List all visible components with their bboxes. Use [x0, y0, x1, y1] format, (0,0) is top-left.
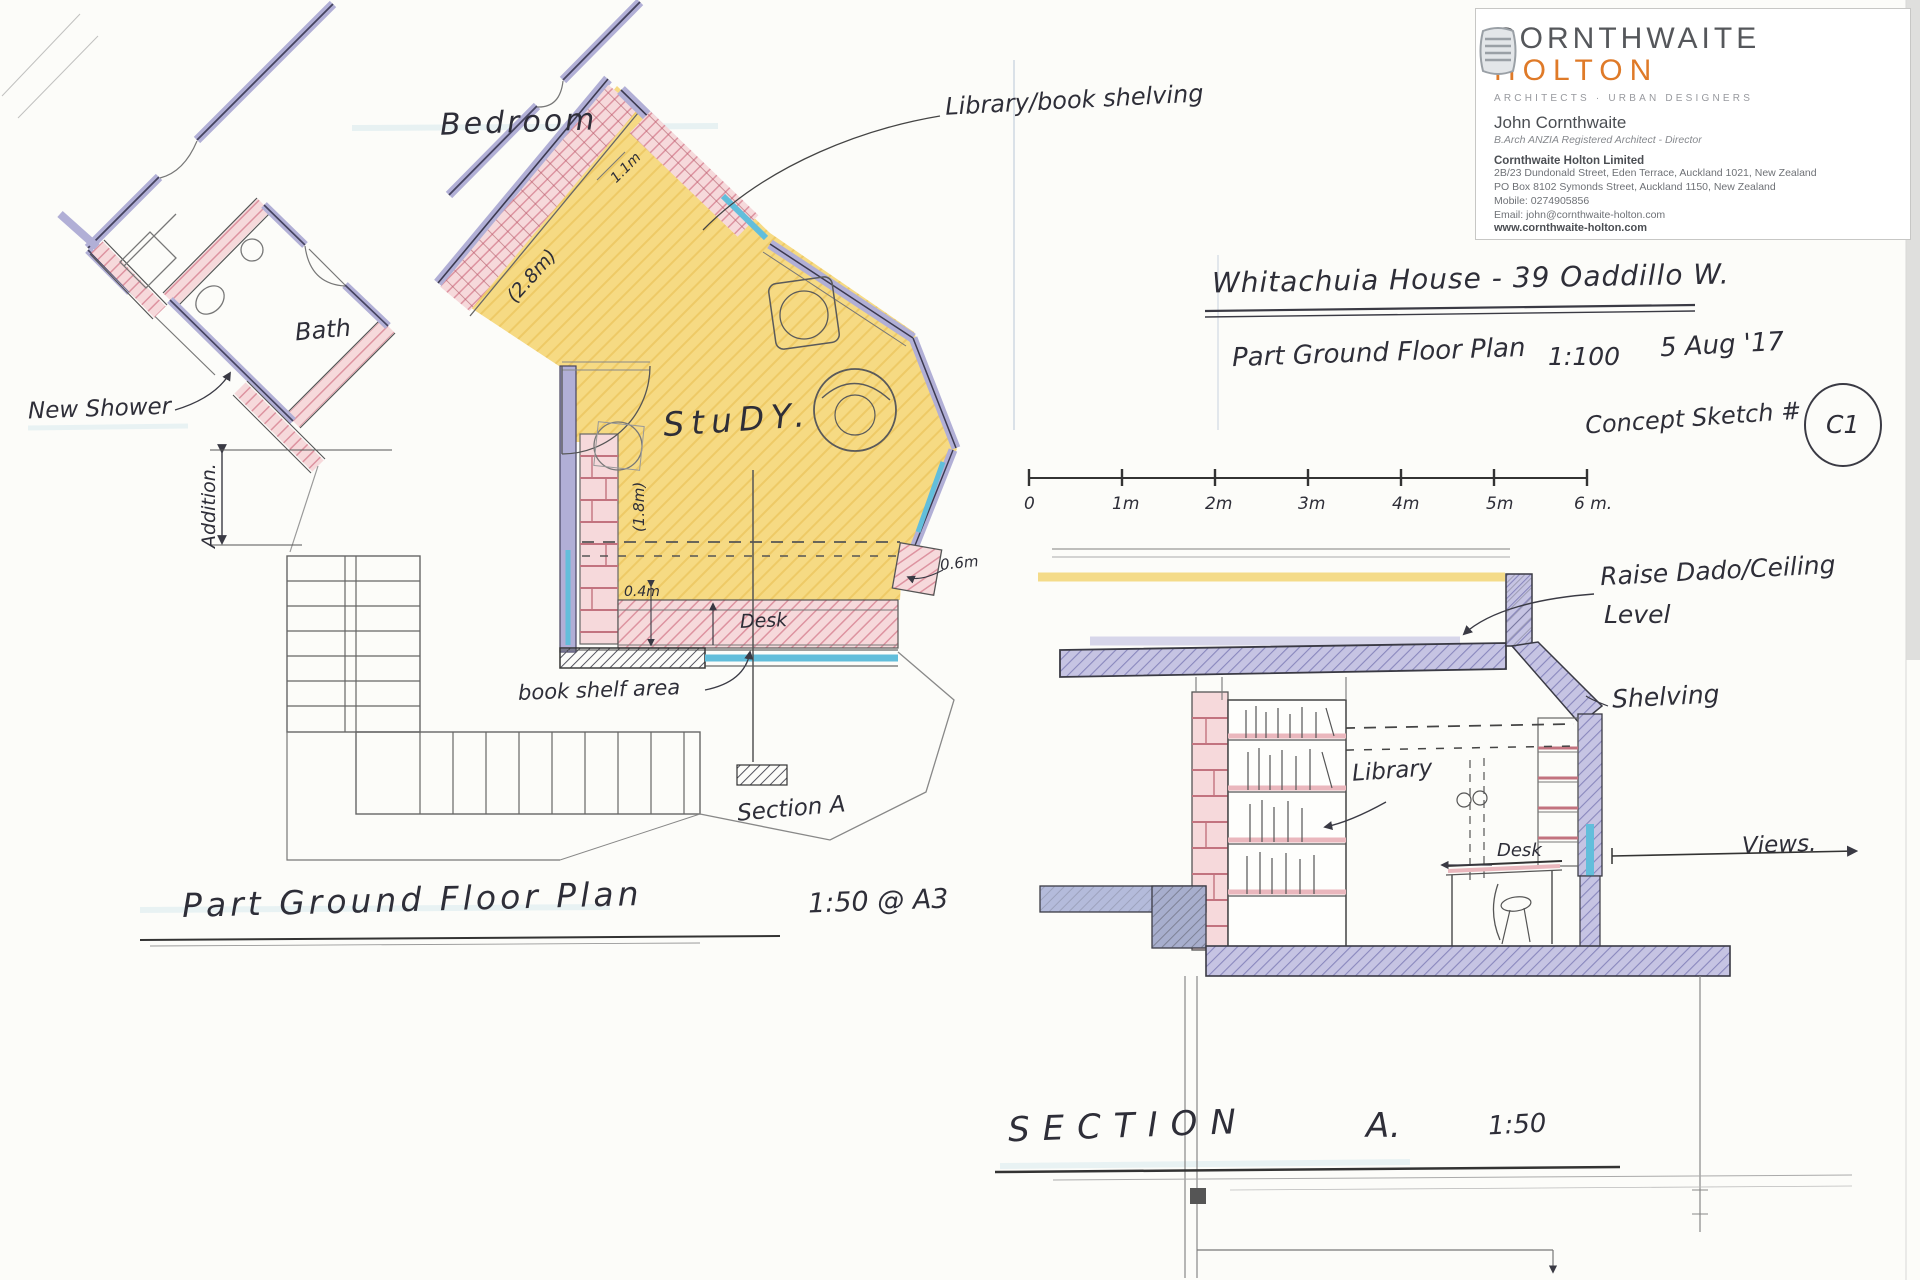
scale-bar-label-6: 6 m. — [1574, 494, 1612, 514]
company-website: www.cornthwaite-holton.com — [1494, 222, 1892, 234]
scale-bar-label-3: 3m — [1298, 494, 1325, 514]
annotation-views: Views. — [1742, 831, 1817, 860]
annotation-desk-plan: Desk — [740, 609, 788, 633]
plan-scale-note: 1:50 @ A3 — [808, 884, 949, 920]
scale-bar-label-5: 5m — [1486, 494, 1513, 514]
annotation-desk-section: Desk — [1497, 840, 1542, 861]
section-drawing — [995, 549, 1856, 1278]
room-label-bath: Bath — [294, 314, 352, 347]
drawing-scale-handwritten: 1:100 — [1548, 342, 1620, 371]
annotation-addition: Addition. — [198, 463, 220, 548]
room-label-bedroom: Bedroom — [439, 102, 597, 142]
scale-bar-label-2: 2m — [1205, 494, 1232, 514]
scale-bar-label-4: 4m — [1392, 494, 1419, 514]
scanned-sketch-page: CORNTHWAITE HOLTON ARCHITECTS · URBAN DE… — [0, 0, 1920, 1280]
architect-title: B.Arch ANZIA Registered Architect - Dire… — [1494, 134, 1892, 146]
company-mobile: Mobile: 0274905856 — [1494, 195, 1892, 209]
annotation-raise-dado-line2: Level — [1604, 600, 1670, 629]
company-address2: PO Box 8102 Symonds Street, Auckland 115… — [1494, 181, 1892, 195]
section-title: SECTION — [1007, 1102, 1249, 1150]
scale-bar — [1029, 469, 1588, 486]
firm-name-line2: HOLTON — [1494, 55, 1892, 87]
dimension-desk-0-4m: 0.4m — [624, 584, 660, 600]
section-title-letter: A. — [1366, 1106, 1401, 1146]
dimension-shelf-1-8m: (1.8m) — [630, 482, 648, 532]
scale-bar-label-0: 0 — [1024, 494, 1035, 514]
firm-logo-icon — [1476, 25, 1520, 77]
scale-bar-label-1: 1m — [1112, 494, 1139, 514]
letterhead-card: CORNTHWAITE HOLTON ARCHITECTS · URBAN DE… — [1475, 8, 1911, 240]
architect-name: John Cornthwaite — [1494, 113, 1892, 133]
annotation-new-shower: New Shower — [28, 394, 172, 425]
firm-tagline: ARCHITECTS · URBAN DESIGNERS — [1494, 93, 1892, 104]
section-scale-note: 1:50 — [1487, 1108, 1547, 1141]
company-address1: 2B/23 Dundonald Street, Eden Terrace, Au… — [1494, 167, 1892, 181]
annotation-shelving: Shelving — [1611, 679, 1720, 714]
sketch-number: C1 — [1826, 410, 1859, 439]
company-name: Cornthwaite Holton Limited — [1494, 155, 1892, 167]
firm-name-line1: CORNTHWAITE — [1494, 23, 1892, 55]
company-email: Email: john@cornthwaite-holton.com — [1494, 209, 1892, 223]
